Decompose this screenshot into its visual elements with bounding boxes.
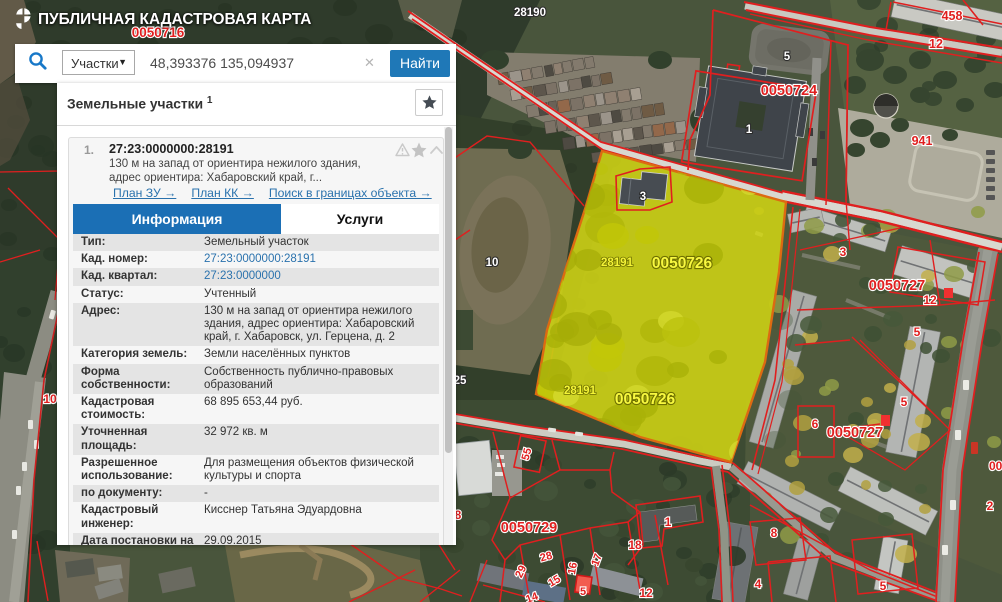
svg-text:8: 8 [771, 526, 778, 540]
svg-text:2: 2 [987, 499, 994, 513]
svg-text:3: 3 [640, 191, 646, 203]
svg-text:4: 4 [755, 577, 762, 591]
svg-text:10: 10 [486, 257, 499, 269]
svg-text:0050727: 0050727 [827, 425, 883, 441]
svg-text:1: 1 [665, 515, 672, 529]
svg-text:12: 12 [923, 293, 937, 307]
svg-text:0050726: 0050726 [652, 255, 713, 272]
svg-text:3: 3 [840, 245, 847, 259]
svg-text:0050729: 0050729 [501, 520, 557, 536]
svg-text:0050724: 0050724 [761, 83, 817, 99]
svg-text:005: 005 [989, 459, 1002, 473]
svg-text:6: 6 [812, 417, 819, 431]
svg-text:458: 458 [942, 9, 963, 23]
svg-text:28191: 28191 [564, 385, 597, 397]
svg-text:12: 12 [639, 586, 653, 600]
svg-text:28191: 28191 [601, 257, 634, 269]
svg-text:941: 941 [912, 134, 933, 148]
svg-text:12: 12 [929, 37, 943, 51]
svg-text:5: 5 [580, 586, 586, 598]
svg-text:0050726: 0050726 [615, 391, 676, 408]
svg-text:5: 5 [901, 395, 908, 409]
svg-text:1: 1 [746, 124, 753, 136]
svg-text:10: 10 [43, 392, 57, 406]
svg-text:16: 16 [566, 561, 580, 575]
svg-text:18: 18 [628, 538, 642, 552]
svg-text:5: 5 [914, 325, 921, 339]
svg-text:28190: 28190 [514, 7, 546, 19]
svg-text:5: 5 [880, 579, 887, 593]
svg-text:0050727: 0050727 [869, 278, 925, 294]
svg-text:5: 5 [784, 51, 791, 63]
